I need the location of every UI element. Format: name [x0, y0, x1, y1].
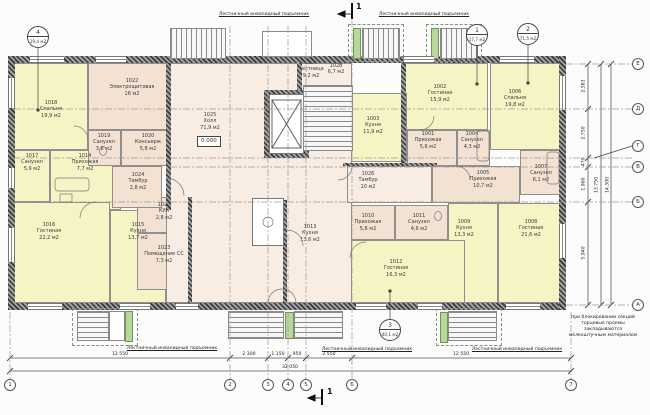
- floor-plan: 1025Холл71,9 м21026Тамбур10 м21018Спальн…: [0, 0, 650, 415]
- window: [506, 303, 540, 310]
- grid-row-bubble: Б: [632, 196, 644, 208]
- apartment-marker: 2 71,5 м2: [517, 23, 539, 45]
- dim-right: 1.960: [582, 177, 587, 190]
- apartment-marker: 3 40,1 м2: [379, 319, 401, 341]
- window: [8, 168, 15, 188]
- blocking-note: при блокировании секций торцевые проемы …: [562, 315, 644, 339]
- lift-label: Лестничный инвалидный подъемник: [127, 346, 217, 351]
- apartment-number: 4: [28, 27, 48, 37]
- grid-column-bubble: 6: [346, 379, 358, 391]
- room-area-1017: [14, 150, 50, 202]
- room-area-1011: [395, 205, 448, 240]
- grid-row-bubble: Д: [632, 103, 644, 115]
- grid-column-bubble: 2: [224, 379, 236, 391]
- section-mark-top: 1: [356, 2, 362, 11]
- dim-bottom: 2 550: [322, 352, 335, 357]
- room-area-1005: [432, 166, 520, 203]
- room-area-1006: [490, 63, 562, 150]
- lift-zone-outline: [348, 24, 404, 62]
- grid-row-bubble: Е: [632, 58, 644, 70]
- dim-right-total: 14.300: [606, 177, 611, 193]
- dim-right: 470: [582, 158, 587, 167]
- section-mark-bottom: 1: [327, 387, 333, 396]
- lift-label: Лестничный инвалидный подъемник: [219, 12, 309, 17]
- window: [8, 228, 15, 262]
- wall-lift-shaft: [264, 154, 309, 158]
- dim-bottom: 12 550: [112, 352, 128, 357]
- dim-bottom: 950: [293, 352, 302, 357]
- lift-label: Лестничный инвалидный подъемник: [472, 347, 562, 352]
- apartment-marker: 1 17,7 м2: [466, 24, 488, 46]
- grid-column-bubble: 4: [282, 379, 294, 391]
- window: [500, 56, 534, 63]
- room-area-1012: [350, 240, 465, 303]
- grid-column-bubble: 1: [4, 379, 16, 391]
- window: [8, 78, 15, 108]
- dim-right-total: 13.750: [595, 177, 600, 193]
- window: [559, 76, 566, 110]
- note-line: мелкоштучным материалом: [562, 333, 644, 339]
- room-area-1026: [347, 166, 432, 203]
- grid-column-bubble: 7: [565, 379, 577, 391]
- room-area-1016: [14, 202, 110, 303]
- grid-row-bubble: В: [632, 161, 644, 173]
- room-area-1003: [345, 93, 407, 162]
- dim-right: 2.583: [582, 79, 587, 92]
- dim-bottom: 1 150: [271, 352, 284, 357]
- dim-bottom: 2 300: [242, 352, 255, 357]
- apartment-area: 19,4 м2: [28, 37, 48, 47]
- apartment-area: 40,1 м2: [380, 330, 400, 340]
- apartment-number: 2: [518, 24, 538, 34]
- room-area-1001: [407, 130, 457, 166]
- window: [120, 303, 150, 310]
- apartment-number: 1: [467, 25, 487, 35]
- room-area-1002: [403, 63, 488, 130]
- elevator-shaft: [269, 94, 304, 154]
- window: [418, 303, 442, 310]
- porch-top-center: [262, 31, 312, 57]
- room-area-1010: [350, 205, 395, 240]
- room-area-1024: [112, 166, 162, 208]
- service-box: [252, 198, 284, 246]
- window: [28, 303, 62, 310]
- stair-bottom-center-left: [228, 311, 284, 339]
- dim-bottom-total: 32 050: [282, 365, 298, 370]
- stair-bottom-center-right: [294, 311, 343, 339]
- stair-flight-interior: [303, 85, 353, 151]
- room-area-1019: [88, 130, 121, 166]
- window: [356, 303, 386, 310]
- room-area-1007: [520, 150, 562, 195]
- note-line: торцевые проемы закладываются: [562, 321, 644, 333]
- lift-label: Лестничный инвалидный подъемник: [379, 12, 469, 17]
- grid-column-bubble: 3: [262, 379, 274, 391]
- window: [404, 56, 434, 63]
- dim-bottom: 12 550: [453, 352, 469, 357]
- window: [559, 224, 566, 258]
- room-area-1008: [498, 203, 562, 303]
- lift-platform: [285, 312, 294, 339]
- room-area-1004: [457, 130, 490, 166]
- window: [30, 56, 64, 63]
- room-area-1022: [88, 63, 176, 130]
- wall-interior: [343, 163, 437, 166]
- lift-zone-outline: [436, 308, 502, 346]
- apartment-area: 71,5 м2: [518, 34, 538, 44]
- grid-row-bubble: Г: [632, 140, 644, 152]
- grid-row-bubble: А: [632, 299, 644, 311]
- stair-top-left: [170, 28, 226, 59]
- apartment-area: 17,7 м2: [467, 35, 487, 45]
- dim-right: 5.940: [582, 246, 587, 259]
- dim-right: 2.750: [582, 126, 587, 139]
- window: [176, 303, 198, 310]
- wall-top: [8, 56, 566, 63]
- window: [96, 56, 126, 63]
- apartment-marker: 4 19,4 м2: [27, 26, 49, 48]
- grid-column-bubble: 5: [300, 379, 312, 391]
- elevation-mark: 0.000: [197, 136, 221, 147]
- wall-interior: [401, 63, 406, 166]
- wall-interior: [166, 63, 171, 210]
- lift-zone-outline: [72, 308, 138, 346]
- room-area-1018: [14, 63, 88, 150]
- apartment-number: 3: [380, 320, 400, 330]
- wall-interior: [188, 197, 192, 303]
